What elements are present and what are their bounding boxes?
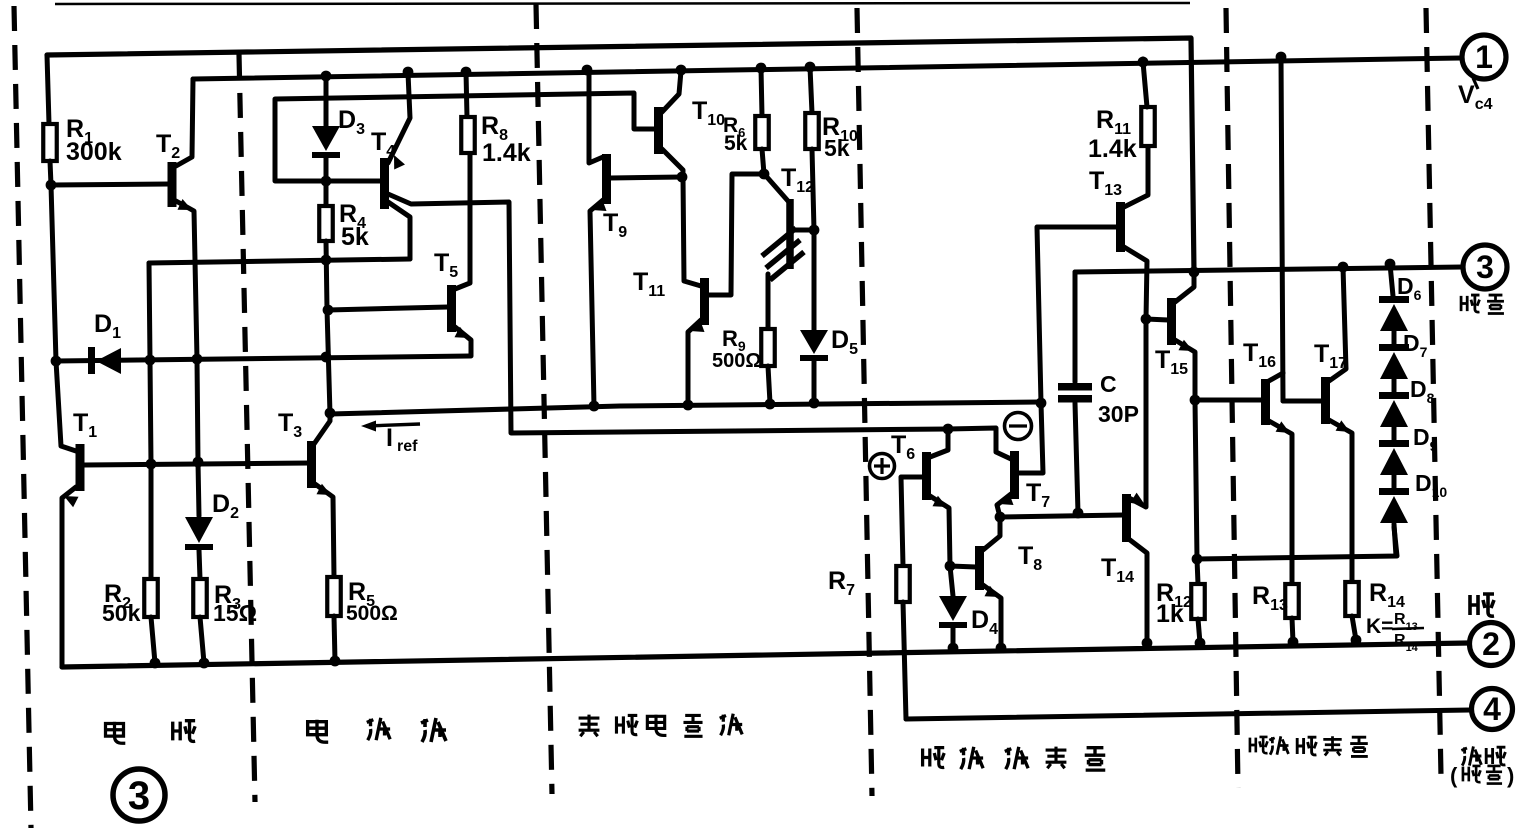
svg-text:15Ω: 15Ω (213, 600, 257, 626)
svg-text:4: 4 (1483, 691, 1501, 727)
svg-text:30P: 30P (1098, 401, 1139, 427)
svg-text:50k: 50k (102, 600, 141, 626)
svg-text:ref: ref (397, 438, 418, 455)
svg-text:500Ω: 500Ω (712, 350, 761, 372)
svg-text:1k: 1k (1156, 600, 1184, 628)
svg-text:1: 1 (1475, 39, 1493, 75)
svg-text:C: C (1100, 371, 1117, 397)
svg-text:500Ω: 500Ω (346, 602, 398, 625)
svg-text:3: 3 (128, 774, 150, 818)
svg-text:1.4k: 1.4k (482, 139, 531, 167)
svg-text:1.4k: 1.4k (1088, 135, 1137, 163)
svg-text:5k: 5k (341, 223, 369, 251)
svg-text:(: ( (1450, 763, 1458, 788)
svg-text:3: 3 (1476, 249, 1494, 285)
svg-text:I: I (386, 424, 393, 452)
svg-text:5k: 5k (724, 132, 748, 155)
svg-text:K=: K= (1366, 615, 1393, 638)
svg-text:5k: 5k (824, 135, 850, 161)
svg-text:2: 2 (1482, 626, 1500, 662)
svg-text:): ) (1507, 763, 1514, 788)
svg-text:300k: 300k (66, 138, 122, 166)
